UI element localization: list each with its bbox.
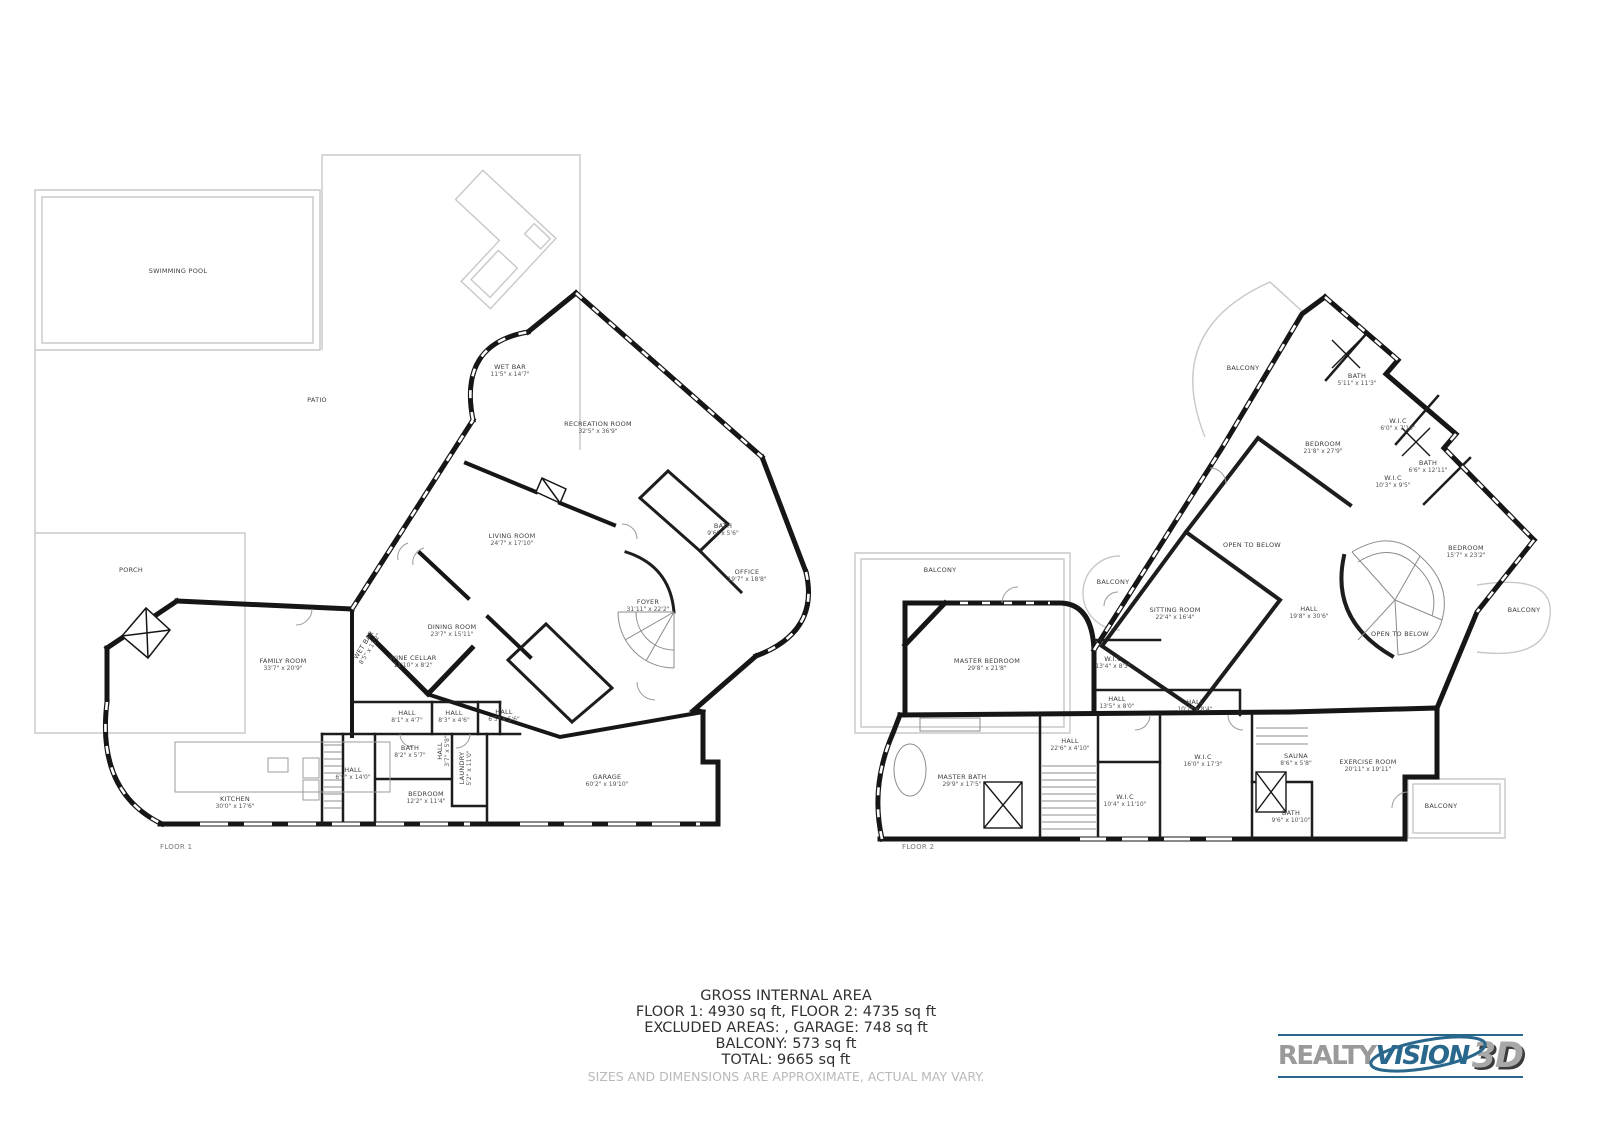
logo-3d-text: 3D <box>1472 1036 1523 1076</box>
realtyvision3d-logo: REALTY VISION 3D <box>1278 1030 1523 1082</box>
floorplan-canvas: FLOOR 1SWIMMING POOLPATIOPORCHWET BAR11'… <box>0 0 1600 1131</box>
outdoor-kitchen-outline <box>417 170 556 308</box>
floorplan-drawing <box>0 0 1600 1131</box>
summary-total: TOTAL: 9665 sq ft <box>436 1052 1136 1068</box>
summary-balcony: BALCONY: 573 sq ft <box>436 1036 1136 1052</box>
floor1-plan <box>35 155 809 824</box>
area-summary: GROSS INTERNAL AREA FLOOR 1: 4930 sq ft,… <box>436 988 1136 1085</box>
summary-floors: FLOOR 1: 4930 sq ft, FLOOR 2: 4735 sq ft <box>436 1004 1136 1020</box>
logo-realty-text: REALTY <box>1278 1041 1376 1071</box>
logo-vision-text: VISION <box>1376 1041 1469 1071</box>
summary-excluded: EXCLUDED AREAS: , GARAGE: 748 sq ft <box>436 1020 1136 1036</box>
summary-disclaimer: SIZES AND DIMENSIONS ARE APPROXIMATE, AC… <box>436 1068 1136 1085</box>
summary-title: GROSS INTERNAL AREA <box>436 988 1136 1004</box>
logo-bottom-line <box>1278 1076 1523 1078</box>
floor2-plan <box>855 282 1550 839</box>
